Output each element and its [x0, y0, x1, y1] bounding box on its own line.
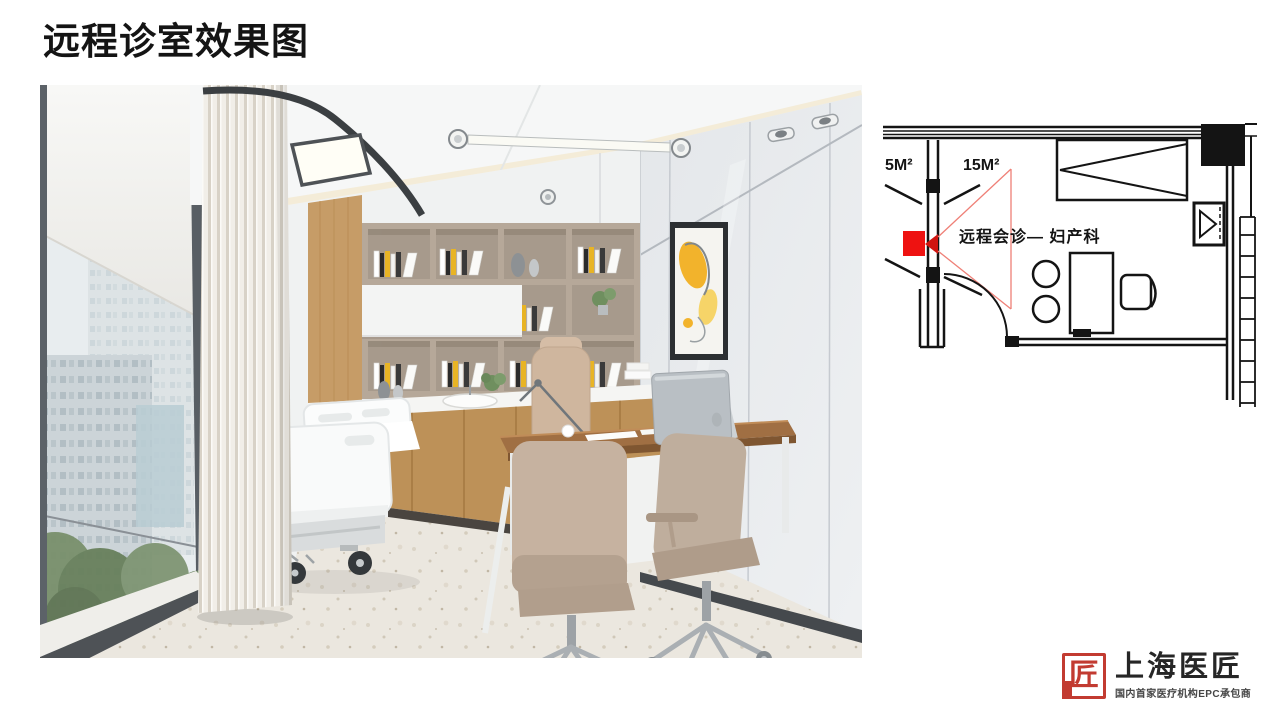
display-symbol — [1194, 203, 1224, 245]
plan-bottom-wall — [1005, 336, 1227, 347]
floor-plan: 5M² 15M² 远程会诊— 妇产科 — [883, 117, 1257, 407]
plan-right-wall — [1227, 165, 1233, 400]
rendering-image — [40, 85, 862, 658]
city-glass-tower — [136, 405, 184, 527]
chair-armrest — [646, 513, 698, 522]
wood-column — [308, 195, 362, 417]
wall-art — [670, 222, 728, 360]
stool-symbol — [1033, 261, 1059, 287]
stool-symbol — [1033, 296, 1059, 322]
plan-column-solid — [1201, 124, 1245, 166]
counter-books — [625, 371, 651, 379]
plan-hatch — [1240, 217, 1255, 407]
company-logo: 匠 上海医匠 国内首家医疗机构EPC承包商 — [1062, 640, 1262, 712]
gas-lift — [702, 581, 711, 621]
logo-seal-icon: 匠 — [1062, 653, 1106, 699]
room-name-label: 远程会诊— 妇产科 — [959, 227, 1100, 246]
desk-symbol — [1070, 253, 1113, 333]
bookshelf — [362, 223, 640, 399]
logo-seal-char: 匠 — [1069, 661, 1099, 691]
exam-couch-symbol — [1057, 140, 1187, 200]
window-frame-left — [40, 85, 47, 651]
area-label-room: 15M² — [963, 157, 999, 174]
ribbed-partition — [197, 85, 293, 625]
camera-marker — [903, 231, 938, 256]
desk-leg — [782, 437, 789, 533]
chair-symbol — [1121, 275, 1156, 309]
area-label-left: 5M² — [885, 157, 913, 174]
door-swing — [944, 274, 1007, 337]
logo-tagline: 国内首家医疗机构EPC承包商 — [1115, 685, 1251, 700]
sink — [443, 394, 497, 408]
cup — [562, 425, 574, 437]
plan-top-wall — [883, 127, 1201, 138]
gas-lift — [567, 615, 576, 649]
counter-books — [627, 363, 649, 370]
consult-room-rendering — [40, 85, 862, 658]
logo-name: 上海医匠 — [1115, 652, 1251, 682]
shelf-white-cabinet — [362, 285, 522, 337]
page-title: 远程诊室效果图 — [43, 22, 309, 63]
imac-monitor — [651, 370, 738, 445]
